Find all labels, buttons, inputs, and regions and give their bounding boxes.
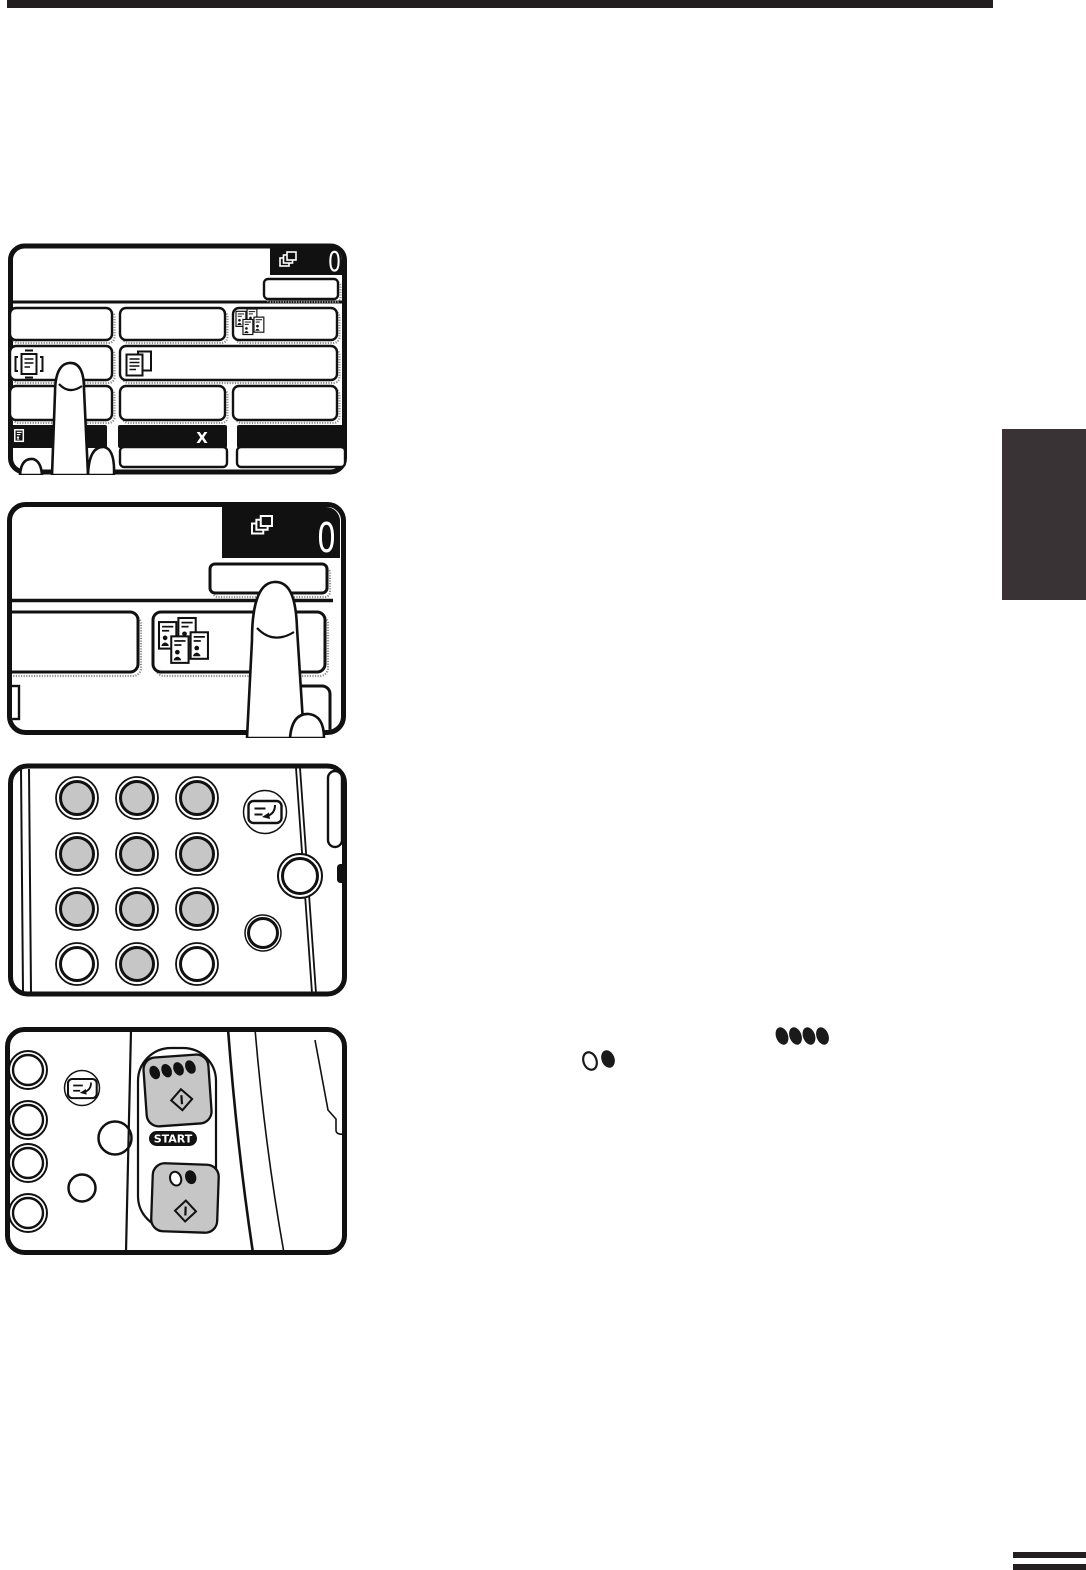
footer-bar	[1013, 1552, 1086, 1558]
interrupt-key	[244, 791, 287, 834]
top-rule	[7, 0, 993, 8]
copy-count-value: 0	[328, 245, 341, 278]
touch-button	[120, 308, 228, 343]
round-key	[278, 854, 322, 898]
bw-start-key	[151, 1163, 219, 1233]
start-label-text: START	[154, 1133, 193, 1146]
touch-button	[233, 386, 340, 423]
touch-button	[7, 612, 141, 676]
interrupt-icon	[68, 1079, 97, 1098]
panel-edge-slot	[328, 771, 342, 847]
touch-button	[10, 308, 115, 343]
touch-button	[237, 447, 345, 467]
panel-edge-latch	[337, 864, 345, 883]
start-label: START	[149, 1131, 197, 1146]
round-key	[69, 1175, 96, 1202]
copy-count-value: 0	[317, 514, 336, 562]
bw-dots-icon	[581, 1049, 619, 1071]
touch-button-page-copy	[120, 346, 340, 383]
interrupt-icon	[249, 801, 282, 823]
footer-bar	[1013, 1564, 1086, 1570]
illustration-keypad	[8, 763, 348, 998]
numeric-key	[56, 888, 98, 930]
illustration-start-keys: START	[5, 1027, 347, 1255]
multiply-label: X	[196, 429, 208, 447]
numeric-key	[56, 833, 98, 875]
round-key	[9, 1144, 47, 1182]
ok-button	[264, 279, 341, 302]
numeric-key	[116, 777, 158, 819]
touch-button	[120, 447, 227, 467]
round-key	[99, 1122, 132, 1155]
touch-button-dual-page	[153, 612, 328, 676]
numeric-key	[176, 777, 218, 819]
numeric-key	[176, 888, 218, 930]
chapter-side-tab	[1002, 429, 1086, 600]
clear-key	[56, 943, 98, 985]
touch-button	[120, 386, 228, 423]
manual-page: { "decor": { "top_rule_color": "#231f20"…	[0, 0, 1086, 1570]
touch-button-dual-page	[233, 308, 340, 343]
round-key	[9, 1101, 47, 1139]
numeric-key	[116, 888, 158, 930]
copy-count-display: 0	[222, 507, 340, 562]
illustration-touchscreen-zoom: 0	[7, 500, 347, 738]
round-key	[9, 1194, 47, 1232]
copy-count-display: 0	[270, 245, 342, 278]
numeric-key	[56, 777, 98, 819]
round-key	[245, 915, 281, 951]
illustration-touchscreen-overview: 0 X	[8, 243, 348, 475]
color-dots-icon	[774, 1026, 830, 1046]
round-key	[9, 1051, 47, 1089]
numeric-key	[116, 943, 158, 985]
numeric-key	[176, 833, 218, 875]
numeric-key	[116, 833, 158, 875]
clear-key	[176, 943, 218, 985]
color-start-key	[143, 1054, 213, 1127]
interrupt-key	[65, 1071, 100, 1106]
